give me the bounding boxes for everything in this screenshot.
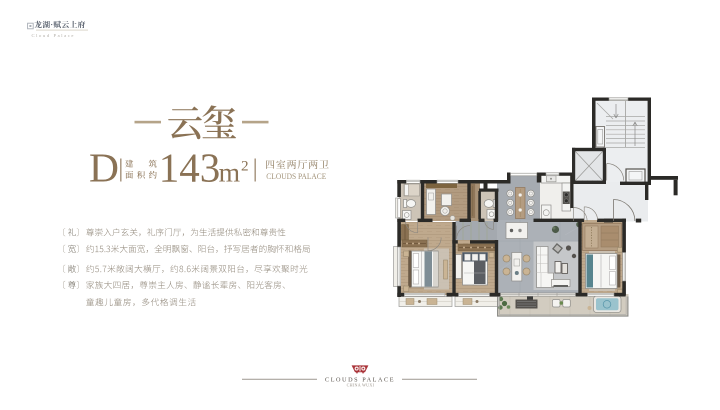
svg-text:m: m (219, 157, 241, 188)
svg-text:D: D (89, 145, 119, 191)
svg-text:143: 143 (159, 145, 221, 191)
svg-text:CHINA WUXI: CHINA WUXI (347, 382, 375, 387)
svg-text:Cloud Palace: Cloud Palace (32, 33, 76, 38)
svg-text:CLOUDS PALACE: CLOUDS PALACE (266, 171, 326, 181)
svg-text:2: 2 (241, 158, 249, 175)
